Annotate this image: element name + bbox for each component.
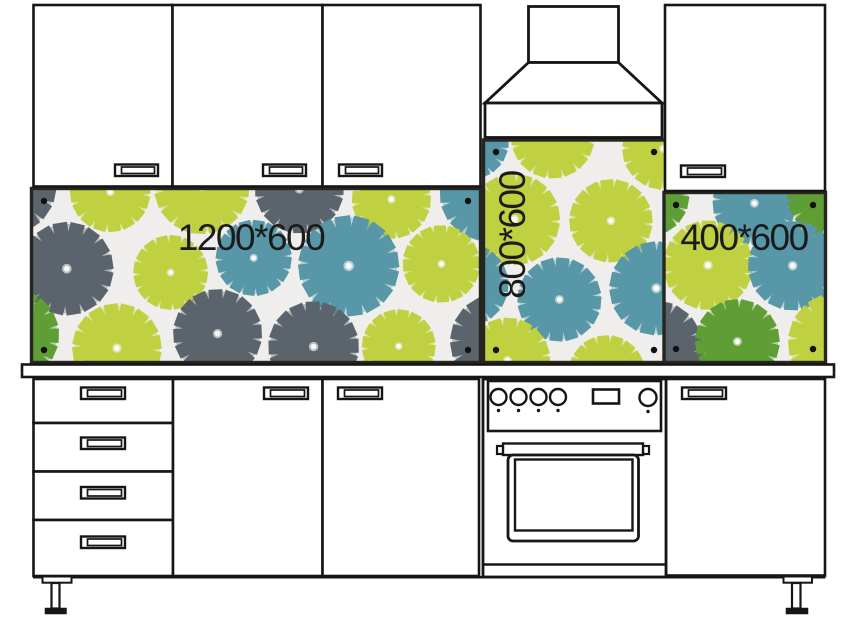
cabinet-handle xyxy=(681,166,725,178)
screw-dot xyxy=(41,198,47,204)
base-cabinet-door-right xyxy=(666,379,825,576)
knob-indicator-dot xyxy=(646,410,649,413)
range-hood xyxy=(485,7,662,138)
adjustable-leg-right xyxy=(784,577,813,614)
leg-foot xyxy=(787,609,808,614)
stove-knob xyxy=(531,389,547,405)
knob-indicator-dot xyxy=(537,409,540,412)
screw-dot xyxy=(493,347,499,353)
screw-dot xyxy=(465,347,471,353)
stove xyxy=(483,379,666,577)
screw-dot xyxy=(810,202,816,208)
cabinet-handle xyxy=(115,165,158,177)
drawer-handle xyxy=(81,388,125,400)
drawer-handle xyxy=(81,537,125,549)
leg-shaft xyxy=(52,583,60,609)
wall-cabinet-door-right xyxy=(665,5,825,191)
panel-size-label-middle: 800*600 xyxy=(492,170,533,298)
wall-cabinet-door-1 xyxy=(34,5,173,187)
hood-chimney xyxy=(529,7,619,63)
hood-canopy xyxy=(485,63,662,104)
stove-knob xyxy=(550,389,566,405)
screw-dot xyxy=(493,149,499,155)
cabinet-handle xyxy=(263,165,306,177)
countertop xyxy=(22,365,834,378)
screw-dot xyxy=(810,346,816,352)
drawer-handle xyxy=(81,487,125,499)
leg-plate xyxy=(784,577,813,583)
panel-size-label-left: 1200*600 xyxy=(178,217,325,258)
drawer-front-1 xyxy=(34,379,174,423)
stove-knob xyxy=(511,389,527,405)
stove-knob xyxy=(491,389,507,405)
knob-indicator-dot xyxy=(517,409,520,412)
knob-indicator-dot xyxy=(497,409,500,412)
screw-dot xyxy=(465,198,471,204)
hood-base-band xyxy=(485,103,662,138)
drawer-handle xyxy=(81,438,125,450)
stove-control-panel xyxy=(488,381,661,431)
screw-dot xyxy=(41,347,47,353)
stove-knob xyxy=(640,389,657,406)
wall-cabinet-door-3 xyxy=(323,5,481,187)
wall-cabinet-door-2 xyxy=(173,5,323,187)
kitchen-line-drawing: 1200*600 800*600 400*600 xyxy=(0,0,850,625)
adjustable-leg-left xyxy=(43,577,72,614)
leg-foot xyxy=(46,609,67,614)
screw-dot xyxy=(673,202,679,208)
cabinet-handle xyxy=(339,165,382,177)
panel-size-label-right: 400*600 xyxy=(680,217,808,258)
screw-dot xyxy=(673,346,679,352)
cabinet-handle xyxy=(338,388,382,400)
base-cabinet-door-a xyxy=(173,379,323,576)
screw-dot xyxy=(651,149,657,155)
base-cabinet-door-b xyxy=(323,379,480,576)
leg-plate xyxy=(43,577,72,583)
cabinet-handle xyxy=(264,388,308,400)
knob-indicator-dot xyxy=(556,409,559,412)
oven-handle-bar xyxy=(503,444,643,456)
screw-dot xyxy=(651,347,657,353)
kitchen-diagram: 1200*600 800*600 400*600 xyxy=(0,0,850,625)
stove-display xyxy=(593,390,619,404)
oven-window xyxy=(515,460,633,531)
leg-shaft xyxy=(792,583,801,609)
cabinet-handle xyxy=(682,388,726,400)
